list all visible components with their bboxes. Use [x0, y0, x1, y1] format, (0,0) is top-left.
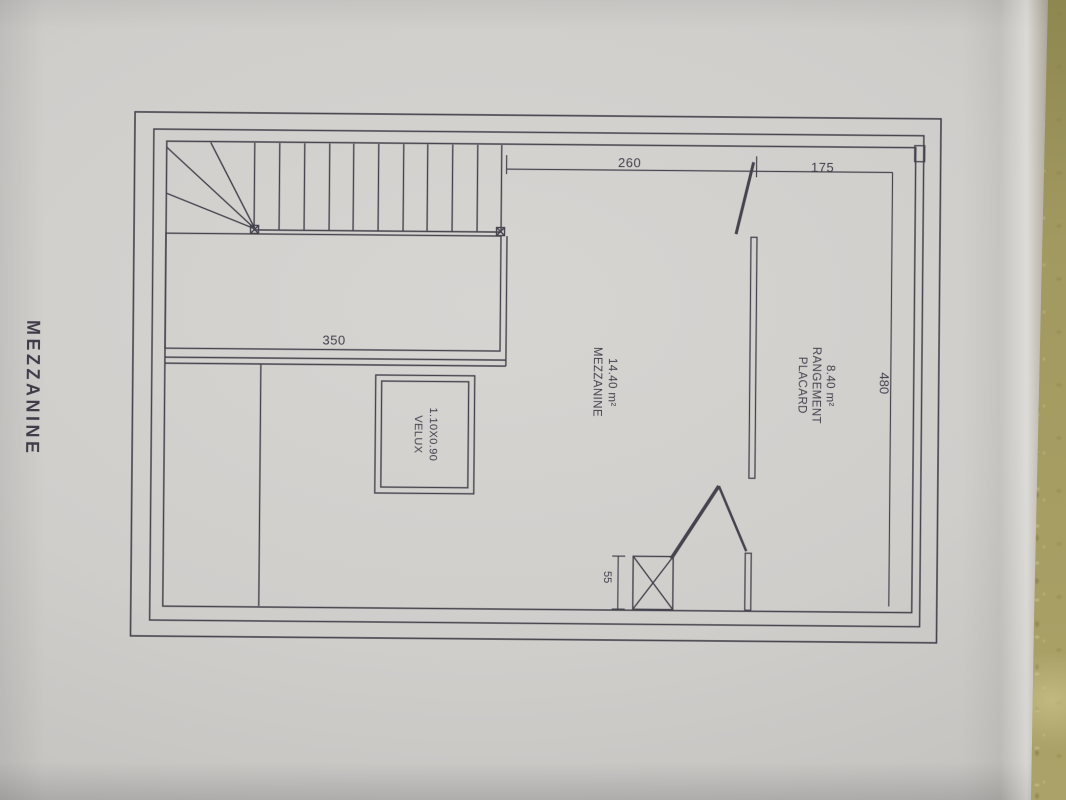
room-label-mezzanine: MEZZANINE 14.40 m² [589, 347, 618, 417]
sheet-title: MEZZANINE [21, 320, 43, 457]
photographed-floor-plan: MEZZANINE 260 175 350 480 55 MEZZANINE 1… [0, 0, 1066, 800]
dimension-260: 260 [600, 155, 660, 171]
room-label-placard: PLACARD RANGEMENT 8.40 m² [794, 347, 836, 424]
floor-plan-linework [0, 0, 1066, 800]
floor-plan: MEZZANINE 260 175 350 480 55 MEZZANINE 1… [0, 0, 1066, 800]
room-name: PLACARD [794, 357, 807, 414]
velux-size: 1.10X0.90 [426, 408, 439, 462]
staircase [166, 142, 505, 235]
room-area: 14.40 m² [605, 358, 618, 407]
dimension-350: 350 [306, 332, 362, 347]
dimension-480: 480 [877, 372, 892, 394]
room-name: MEZZANINE [589, 347, 603, 417]
velux-name: VELUX [411, 415, 424, 453]
partition-line [259, 364, 261, 606]
velux-label: VELUX 1.10X0.90 [375, 375, 475, 494]
door-leaf [671, 486, 719, 559]
dimension-55: 55 [601, 571, 613, 583]
door-leaf [718, 486, 747, 551]
room-name: RANGEMENT [808, 347, 822, 424]
room-area: 8.40 m² [823, 365, 836, 407]
door-leaf [736, 162, 754, 234]
flue-box [633, 556, 673, 609]
dimension-175: 175 [795, 160, 851, 175]
